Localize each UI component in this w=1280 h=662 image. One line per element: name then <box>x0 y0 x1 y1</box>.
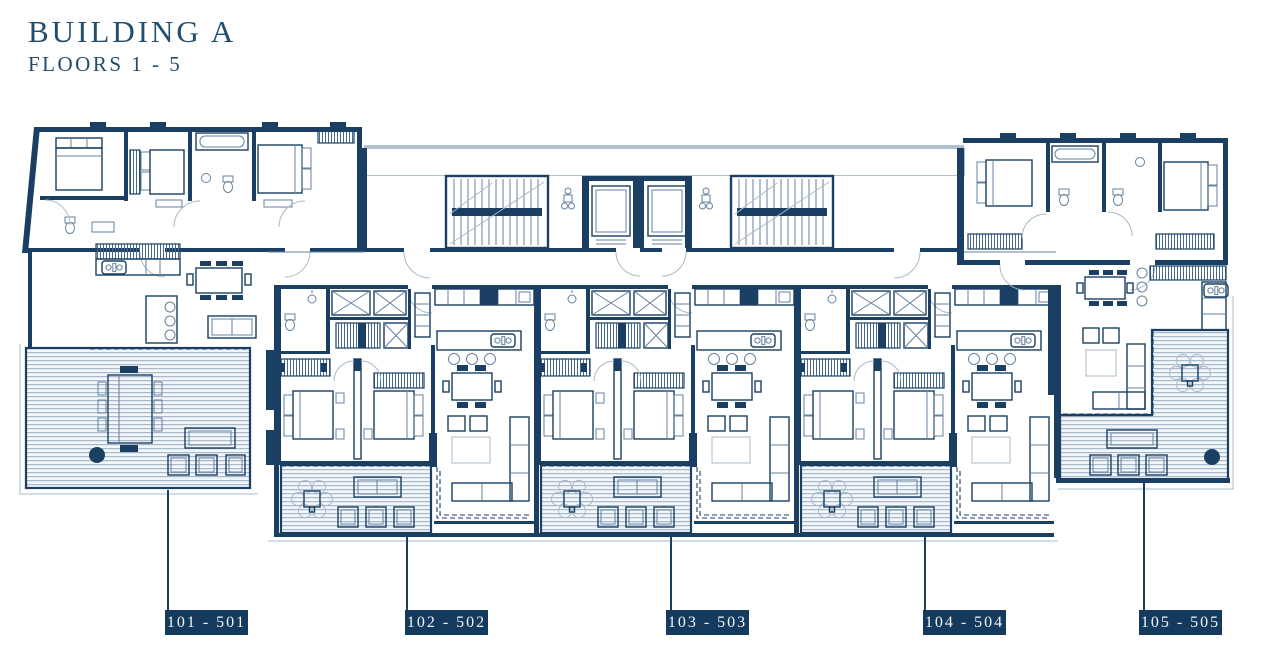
unit-label-101-501[interactable]: 101 - 501 <box>165 610 248 635</box>
unit-101-terrace <box>20 344 258 494</box>
unit-label-102-502[interactable]: 102 - 502 <box>405 610 488 635</box>
unit-label-105-505[interactable]: 105 - 505 <box>1139 610 1222 635</box>
firepit-glyph <box>1204 449 1220 465</box>
floorplan-page: BUILDING A FLOORS 1 - 5 <box>0 0 1280 662</box>
unit-102-plan <box>274 285 534 537</box>
floor-plan-svg <box>0 0 1280 662</box>
unit-103-plan <box>534 285 794 537</box>
elevator-bank <box>562 176 713 248</box>
unit-label-104-504[interactable]: 104 - 504 <box>923 610 1006 635</box>
unit-label-103-503[interactable]: 103 - 503 <box>666 610 749 635</box>
unit-104-plan <box>794 285 1054 537</box>
firepit-glyph <box>89 447 105 463</box>
